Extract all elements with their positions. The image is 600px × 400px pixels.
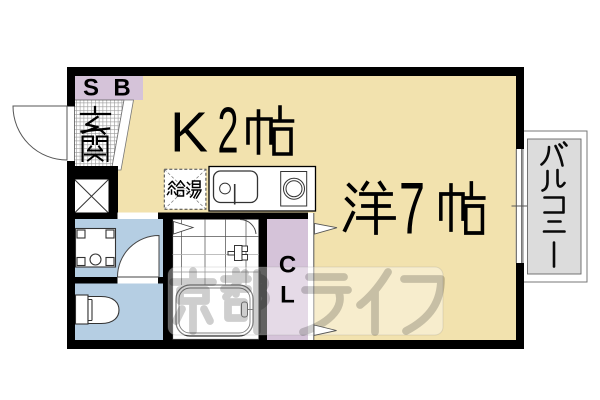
svg-text:C: C — [279, 252, 296, 279]
svg-text:B: B — [113, 75, 130, 102]
svg-text:S: S — [83, 75, 99, 102]
svg-text:7: 7 — [399, 169, 425, 250]
svg-text:K: K — [170, 101, 208, 165]
svg-text:2: 2 — [218, 94, 239, 167]
svg-text:L: L — [280, 282, 295, 309]
